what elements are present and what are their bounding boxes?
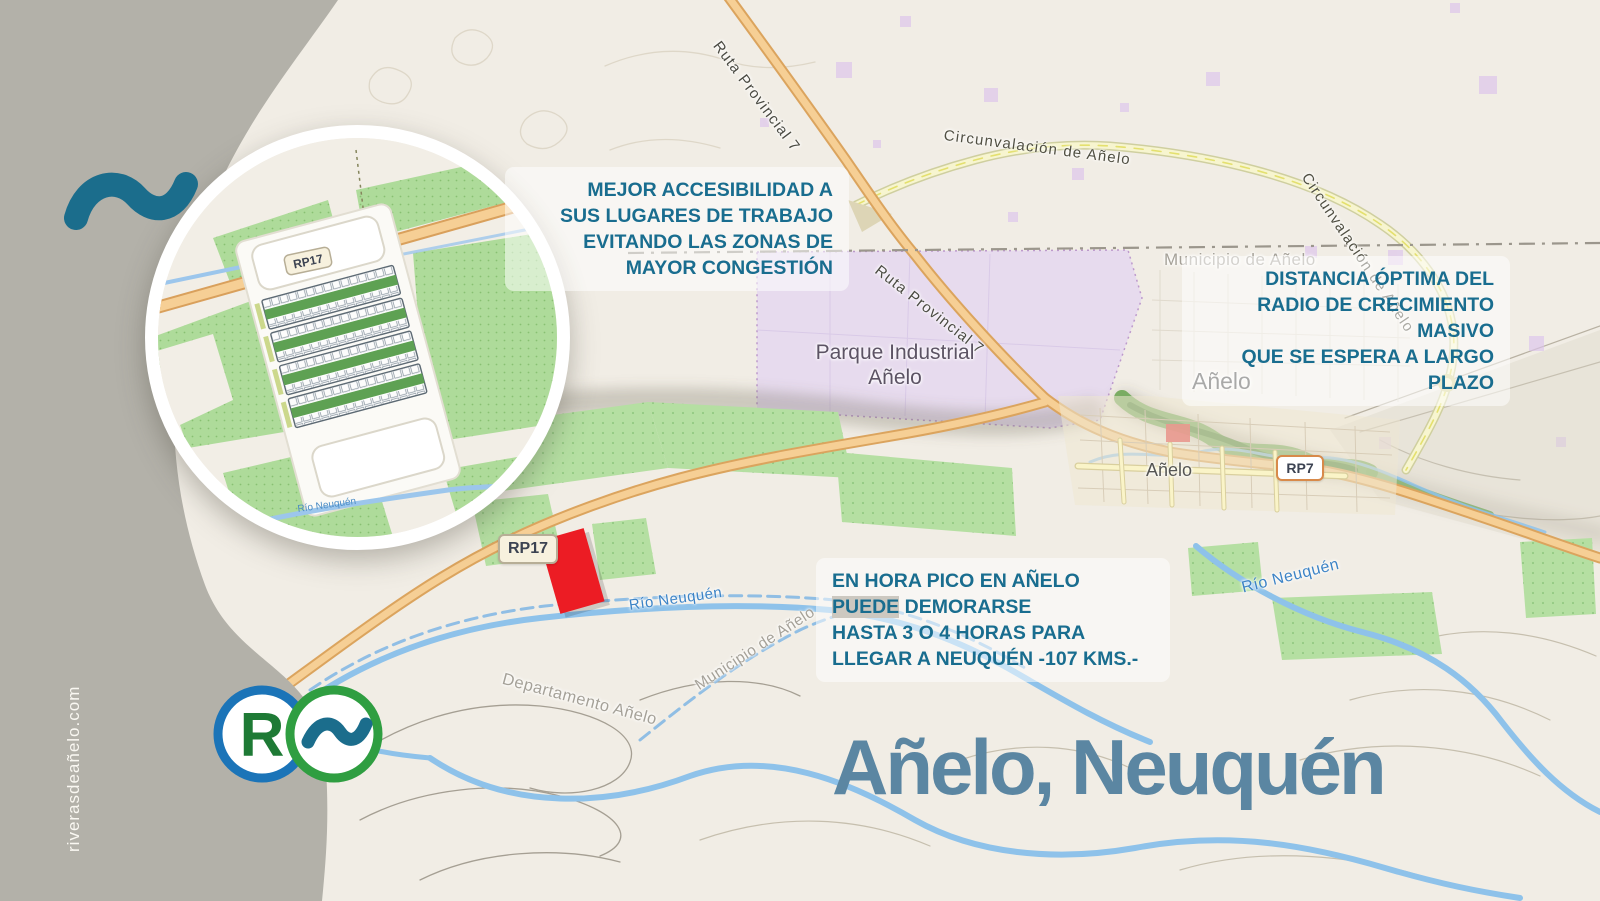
parque-industrial-label: Parque Industrial Añelo: [795, 340, 995, 390]
rp17-badge: RP17: [498, 534, 558, 564]
note-line: EN HORA PICO EN AÑELO: [832, 568, 1154, 594]
note-line: SUS LUGARES DE TRABAJO: [521, 203, 833, 229]
note-accessibility: MEJOR ACCESIBILIDAD A SUS LUGARES DE TRA…: [505, 167, 849, 291]
parque-industrial-line1: Parque Industrial: [795, 340, 995, 365]
note-line: LLEGAR A NEUQUÉN -107 KMS.-: [832, 646, 1154, 672]
note-line: HASTA 3 O 4 HORAS PARA: [832, 620, 1154, 646]
note-distance: DISTANCIA ÓPTIMA DEL RADIO DE CRECIMIENT…: [1182, 256, 1510, 406]
watermark-url: riverasdeañelo.com: [64, 686, 84, 852]
note-line: QUE SE ESPERA A LARGO PLAZO: [1198, 344, 1494, 396]
note-line: MAYOR CONGESTIÓN: [521, 255, 833, 281]
note-line: DISTANCIA ÓPTIMA DEL: [1198, 266, 1494, 292]
highlighted-word: PUEDE: [832, 596, 899, 618]
brand-tilde-mark: [58, 158, 208, 248]
parque-industrial-line2: Añelo: [795, 365, 995, 390]
note-line: EVITANDO LAS ZONAS DE: [521, 229, 833, 255]
note-line: PUEDE DEMORARSE: [832, 594, 1154, 620]
logo-letter: R: [240, 701, 285, 770]
tilde-icon: [76, 184, 186, 218]
rp7-badge: RP7: [1276, 455, 1324, 481]
anelo-map-infographic: Río Neuquén RP17 R riverasdeañelo.com Ru…: [0, 0, 1600, 901]
note-line: MEJOR ACCESIBILIDAD A: [521, 177, 833, 203]
note-line: RADIO DE CRECIMIENTO MASIVO: [1198, 292, 1494, 344]
town-label-anelo-small: Añelo: [1146, 460, 1192, 481]
riveras-logo: R: [203, 676, 395, 796]
note-rush-hour: EN HORA PICO EN AÑELO PUEDE DEMORARSE HA…: [816, 558, 1170, 682]
page-title: Añelo, Neuquén: [832, 722, 1384, 813]
masterplan-inset-map: Río Neuquén RP17: [158, 138, 557, 537]
